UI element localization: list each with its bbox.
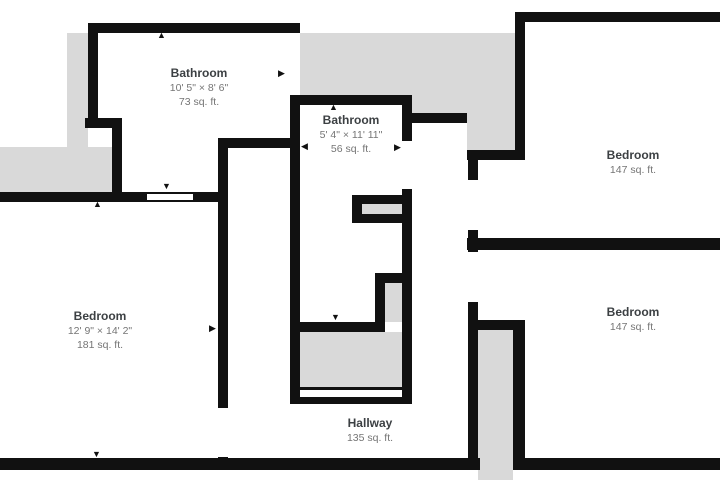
wall [375, 273, 412, 283]
room-dimensions: 12' 9" × 14' 2" [68, 324, 132, 338]
opening-arrow-left-icon: ◀ [301, 142, 308, 151]
wall [290, 397, 412, 404]
wall [112, 118, 122, 202]
wall [218, 138, 300, 148]
wall [467, 238, 720, 250]
room-label-bathroom-middle: Bathroom 5' 4" × 11' 11" 56 sq. ft. [320, 113, 383, 156]
door-opening [468, 177, 478, 233]
room-label-hallway: Hallway 135 sq. ft. [347, 416, 393, 445]
wall [468, 320, 525, 330]
door-opening [402, 138, 412, 192]
excluded-area [412, 95, 515, 115]
room-name: Bedroom [607, 148, 660, 163]
excluded-area [478, 330, 513, 480]
wall [515, 12, 525, 160]
room-label-bathroom-top: Bathroom 10' 5" × 8' 6" 73 sq. ft. [170, 66, 228, 109]
opening-arrow-up-icon: ▲ [329, 103, 338, 112]
excluded-area [300, 33, 515, 95]
door-opening [468, 249, 478, 305]
wall [513, 458, 720, 470]
wall [290, 322, 385, 332]
room-area: 73 sq. ft. [170, 95, 228, 109]
opening-arrow-up-icon: ▲ [93, 200, 102, 209]
room-name: Hallway [347, 416, 393, 431]
room-name: Bathroom [320, 113, 383, 128]
room-area: 147 sq. ft. [607, 163, 660, 177]
opening-arrow-left-icon: ◀ [90, 69, 97, 78]
wall [0, 458, 480, 470]
room-area: 56 sq. ft. [320, 142, 383, 156]
room-label-bedroom-bottom-right: Bedroom 147 sq. ft. [607, 305, 660, 334]
stair-opening [300, 390, 402, 397]
excluded-area [0, 147, 112, 192]
room-label-bedroom-left: Bedroom 12' 9" × 14' 2" 181 sq. ft. [68, 309, 132, 352]
wall [88, 23, 300, 33]
wall [0, 192, 228, 202]
door-opening [147, 192, 193, 202]
floor-plan: ▲ ◀ ▶ ▲ ◀ ▶ ▼ ▶ ▼ ▲ ▼ Bathroom 10' 5" × … [0, 0, 720, 480]
wall [515, 12, 720, 22]
excluded-area [385, 283, 402, 322]
opening-arrow-down-icon: ▼ [92, 450, 101, 459]
wall [412, 113, 467, 123]
wall [290, 95, 412, 105]
room-dimensions: 5' 4" × 11' 11" [320, 128, 383, 142]
room-area: 181 sq. ft. [68, 338, 132, 352]
wall [352, 195, 362, 223]
room-label-bedroom-top-right: Bedroom 147 sq. ft. [607, 148, 660, 177]
room-name: Bedroom [607, 305, 660, 320]
window-opening [218, 405, 228, 460]
wall [513, 330, 525, 470]
room-dimensions: 10' 5" × 8' 6" [170, 81, 228, 95]
room-area: 147 sq. ft. [607, 320, 660, 334]
excluded-area [467, 115, 515, 150]
excluded-area-stairs [300, 332, 402, 388]
opening-arrow-right-icon: ▶ [394, 143, 401, 152]
room-name: Bedroom [68, 309, 132, 324]
opening-arrow-right-icon: ▶ [209, 324, 216, 333]
opening-arrow-up-icon: ▲ [157, 31, 166, 40]
room-name: Bathroom [170, 66, 228, 81]
wall [290, 95, 300, 404]
opening-arrow-down-icon: ▼ [331, 313, 340, 322]
room-area: 135 sq. ft. [347, 431, 393, 445]
opening-arrow-down-icon: ▼ [162, 182, 171, 191]
opening-arrow-right-icon: ▶ [278, 69, 285, 78]
